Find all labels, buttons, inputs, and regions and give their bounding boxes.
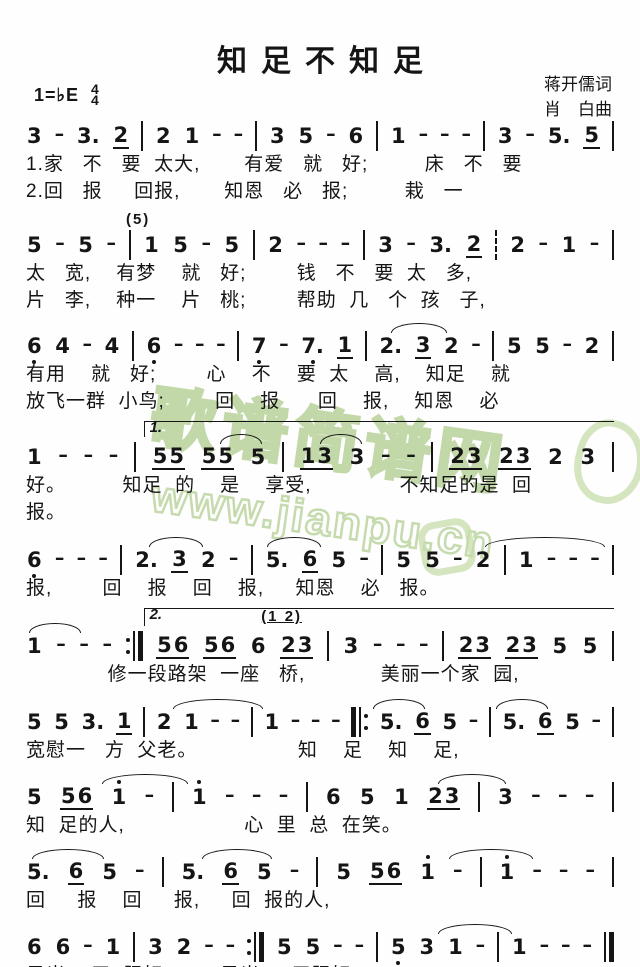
duration-dash: – <box>83 333 93 355</box>
note-group: 1 <box>561 234 578 257</box>
duration-dash: – <box>440 123 450 145</box>
duration-dash: – <box>532 859 542 881</box>
note: 1 <box>143 234 160 257</box>
volta-label: 2. <box>145 606 163 623</box>
duration-dash: – <box>84 444 94 466</box>
duration-dash: – <box>102 633 112 655</box>
note: 3 <box>579 446 596 469</box>
note: 2 <box>475 549 492 572</box>
annotation: (1 2) <box>261 608 302 625</box>
barline <box>483 121 485 151</box>
barline <box>497 932 499 962</box>
duration-dash: – <box>201 232 211 254</box>
system-line: 553.121––1–––5.65–5.65–宽慰一 方 父老。 知 足 知 足… <box>26 694 614 763</box>
note-group: 5 <box>534 335 551 358</box>
barline <box>253 230 255 260</box>
note: 3 <box>444 785 461 808</box>
barline <box>381 545 383 575</box>
duration-dash: – <box>476 934 486 956</box>
volta-label: 1. <box>145 419 163 436</box>
barline <box>504 545 506 575</box>
barline <box>376 932 378 962</box>
system-line: 6–––2.32–5.65–55–21–––报, 回 报 回 报, 知恩 必 报… <box>26 532 614 601</box>
note-group: 2 <box>176 936 193 959</box>
barline <box>141 121 143 151</box>
note: 6 <box>77 785 94 808</box>
duration-dash: – <box>279 784 289 806</box>
note: 5 <box>582 635 599 658</box>
duration-dash: – <box>341 232 351 254</box>
duration-dash: – <box>216 333 226 355</box>
lyrics-line: 报, 回 报 回 报, 知恩 必 报。 <box>26 577 614 601</box>
duration-dash: – <box>229 547 239 569</box>
duration-dash: – <box>290 859 300 881</box>
note: 1 <box>105 936 122 959</box>
duration-dash: – <box>333 934 343 956</box>
note: 1 <box>447 936 464 959</box>
note-group: 3 <box>579 446 596 469</box>
note: 2 <box>176 936 193 959</box>
sheet-music-page: 歌谱简谱网 www.jianpu.cn 知足不知足 蒋开儒词 肖 白曲 1=♭E… <box>0 0 640 967</box>
duration-dash: – <box>582 934 592 956</box>
note-group: 7. <box>300 335 325 358</box>
note-group: 3 <box>26 125 43 148</box>
note-group: 56 <box>369 860 402 885</box>
note: 1 <box>518 549 535 572</box>
note: 5 <box>298 125 315 148</box>
note-group: 6 <box>222 860 239 885</box>
note-group: 2 <box>200 549 217 572</box>
note: 5 <box>201 445 218 468</box>
note: 6 <box>222 860 239 883</box>
note: 3 <box>343 635 360 658</box>
notation-row: 553.121––1–––5.65–5.65– <box>26 708 614 736</box>
duration-dash: – <box>561 934 571 956</box>
note-group: 5 <box>582 635 599 658</box>
note: 7 <box>251 335 268 358</box>
system-line: (5)5–5–15–52–––3–3.22–1–太 宽, 有梦 就 好; 钱 不… <box>26 211 614 313</box>
note: 2 <box>498 445 515 468</box>
note-group: 56 <box>156 634 189 659</box>
note-group: 23 <box>498 445 531 470</box>
note-group: 1 <box>105 936 122 959</box>
duration-dash: – <box>296 232 306 254</box>
barline <box>143 707 145 737</box>
duration-dash: – <box>83 934 93 956</box>
note: 7. <box>300 335 325 358</box>
note: 1 <box>561 234 578 257</box>
duration-dash: – <box>234 123 244 145</box>
duration-dash: – <box>585 784 595 806</box>
note: 2 <box>505 634 522 657</box>
note: 1 <box>300 445 317 468</box>
note-group: 2 <box>443 335 460 358</box>
note-group: 5 <box>77 234 94 257</box>
duration-dash: – <box>212 123 222 145</box>
duration-dash: – <box>226 934 236 956</box>
note: 1 <box>263 711 280 734</box>
duration-dash: – <box>55 232 65 254</box>
duration-dash: – <box>381 444 391 466</box>
note: 5 <box>101 861 118 884</box>
duration-dash: – <box>453 859 463 881</box>
note: 5 <box>335 861 352 884</box>
note-group: 2 <box>113 124 130 149</box>
note-group: 5 <box>250 446 267 469</box>
note-group: 1 <box>26 446 43 469</box>
note: 6 <box>55 936 72 959</box>
note: 6 <box>537 710 554 733</box>
note-group: 2 <box>584 335 601 358</box>
note-group: 6 <box>26 936 43 959</box>
note: 5 <box>26 786 43 809</box>
note-group: 1 <box>116 710 133 735</box>
note: 1 <box>184 125 201 148</box>
note-group: 1 <box>191 786 208 809</box>
note: 3 <box>297 634 314 657</box>
barline <box>327 631 329 661</box>
system-line: 3–3.221––35–61–––3–5.51.家 不 要 太大, 有爱 就 好… <box>26 116 614 204</box>
note: 3 <box>466 445 483 468</box>
note-group: 6 <box>250 635 267 658</box>
note: 6 <box>26 335 43 358</box>
key-signature: 1=♭E <box>34 85 79 106</box>
duration-dash: – <box>531 784 541 806</box>
barline <box>612 631 614 661</box>
duration-dash: – <box>77 547 87 569</box>
note-group: 5 <box>335 861 352 884</box>
note-group: 1 <box>337 334 354 359</box>
duration-dash: – <box>469 709 479 731</box>
note: 2 <box>458 634 475 657</box>
duration-dash: – <box>225 784 235 806</box>
duration-dash: – <box>319 232 329 254</box>
duration-dash: – <box>58 444 68 466</box>
note-group: 5 <box>424 549 441 572</box>
time-signature-denominator: 4 <box>91 95 99 106</box>
system-line: 2.(1 2)1–––56566233–––232355 修一段路架 一座 桥,… <box>26 608 614 687</box>
duration-dash: – <box>55 547 65 569</box>
note-group: 3 <box>147 936 164 959</box>
note: 5 <box>60 785 77 808</box>
barline <box>134 442 136 472</box>
lyrics-line: 片 李, 种一 片 桃; 帮助 几 个 孩 子, <box>26 289 614 313</box>
note-group: 5 <box>26 786 43 809</box>
note-group: 3 <box>497 125 514 148</box>
duration-dash: – <box>109 444 119 466</box>
note-group: 4 <box>104 335 121 358</box>
note-group: 6 <box>26 335 43 358</box>
duration-dash: – <box>558 784 568 806</box>
note-group: 5. <box>265 549 290 572</box>
duration-dash: – <box>539 232 549 254</box>
note-group: 2 <box>156 711 173 734</box>
barline <box>316 857 318 887</box>
note: 1 <box>499 861 516 884</box>
barline <box>480 857 482 887</box>
note-group: 5. <box>181 861 206 884</box>
duration-dash: – <box>590 547 600 569</box>
duration-dash: – <box>563 333 573 355</box>
note-group: 6 <box>348 125 365 148</box>
duration-dash: – <box>540 934 550 956</box>
lyrics-line: 回 报 回 报, 回 报的人, <box>26 889 614 913</box>
note: 5 <box>305 936 322 959</box>
note: 5 <box>395 549 412 572</box>
note: 5. <box>547 125 572 148</box>
note: 5 <box>369 860 386 883</box>
end-repeat-barline <box>247 932 264 962</box>
note-group: 1 <box>111 786 128 809</box>
duration-dash: – <box>406 444 416 466</box>
note: 2 <box>156 711 173 734</box>
note: 2 <box>443 335 460 358</box>
barline <box>431 442 433 472</box>
note: 5 <box>53 711 70 734</box>
note: 6 <box>250 635 267 658</box>
note: 5 <box>424 549 441 572</box>
note: 5. <box>26 861 51 884</box>
note: 3. <box>76 125 101 148</box>
duration-dash: – <box>585 859 595 881</box>
duration-dash: – <box>145 784 155 806</box>
duration-dash: – <box>231 709 241 731</box>
note: 3 <box>521 634 538 657</box>
note-group: 3. <box>428 234 453 257</box>
note-group: 4 <box>54 335 71 358</box>
lyrics-line: 报。 <box>26 501 614 525</box>
note-group: 2 <box>466 233 483 258</box>
barline <box>133 932 135 962</box>
barline <box>237 331 239 361</box>
note-group: 23 <box>449 445 482 470</box>
barline <box>251 545 253 575</box>
notation-row: 64–46–––7–7.12.32–55–2 <box>26 332 614 360</box>
note: 6 <box>414 710 431 733</box>
notation-row: 3–3.221––35–61–––3–5.5 <box>26 122 614 150</box>
duration-dash: – <box>55 123 65 145</box>
barline <box>132 331 134 361</box>
note: 5 <box>156 634 173 657</box>
dashed-barline <box>495 230 497 260</box>
note-group: 5 <box>172 234 189 257</box>
note-group: 6 <box>302 548 319 573</box>
volta-bracket: 1. <box>144 421 614 437</box>
barline <box>612 707 614 737</box>
duration-dash: – <box>568 547 578 569</box>
note-group: 3 <box>349 446 366 469</box>
note-group: 6 <box>68 860 85 885</box>
duration-dash: – <box>355 934 365 956</box>
note: 1 <box>26 446 43 469</box>
system-line: 66–132––55––531–1–––风光 无 限好, 风光 无限好。 <box>26 920 614 967</box>
note: 2 <box>113 124 130 147</box>
duration-dash: – <box>591 709 601 731</box>
barline <box>489 707 491 737</box>
note: 3 <box>316 445 333 468</box>
final-barline <box>604 932 614 962</box>
barline <box>612 782 614 812</box>
note: 6 <box>146 335 163 358</box>
note: 5 <box>168 445 185 468</box>
note-group: 1 <box>419 861 436 884</box>
lyrics-line: 1.家 不 要 太大, 有爱 就 好; 床 不 要 <box>26 153 614 177</box>
time-signature: 4 4 <box>91 84 99 106</box>
note-group: 1 <box>184 125 201 148</box>
note-group: 5 <box>564 711 581 734</box>
score-header: 知足不知足 蒋开儒词 肖 白曲 1=♭E 4 4 <box>0 0 640 106</box>
note-group: 3 <box>343 635 360 658</box>
duration-dash: – <box>210 709 220 731</box>
note-group: 3 <box>497 786 514 809</box>
note: 1 <box>390 125 407 148</box>
note: 6 <box>348 125 365 148</box>
duration-dash: – <box>291 709 301 731</box>
annotation: (5) <box>126 211 150 228</box>
note: 3 <box>349 446 366 469</box>
note: 5 <box>583 124 600 147</box>
duration-dash: – <box>373 633 383 655</box>
note-group: 5. <box>547 125 572 148</box>
notation-row: 1–––56566233–––232355 <box>26 632 614 660</box>
note-group: 5 <box>390 936 407 959</box>
lyrics-line: 知 足的人, 心 里 总 在笑。 <box>26 814 614 838</box>
volta-bracket: 2. <box>144 608 614 626</box>
note: 5. <box>181 861 206 884</box>
note-group: 3 <box>419 936 436 959</box>
note-group: 6 <box>537 710 554 735</box>
duration-dash: – <box>204 934 214 956</box>
note: 5 <box>564 711 581 734</box>
note-group: 1 <box>511 936 528 959</box>
note-group: 6 <box>146 335 163 358</box>
duration-dash: – <box>419 123 429 145</box>
note: 5 <box>26 234 43 257</box>
note: 5 <box>224 234 241 257</box>
duration-dash: – <box>525 123 535 145</box>
note-group: 5 <box>305 936 322 959</box>
note-group: 1 <box>143 234 160 257</box>
duration-dash: – <box>311 709 321 731</box>
note: 4 <box>54 335 71 358</box>
barline <box>612 230 614 260</box>
note-group: 5 <box>551 635 568 658</box>
note: 5 <box>551 635 568 658</box>
note: 5. <box>265 549 290 572</box>
barline <box>612 442 614 472</box>
barline <box>255 121 257 151</box>
note: 2 <box>427 785 444 808</box>
barline <box>442 631 444 661</box>
notation-row: 5.65–5.65–5561–1––– <box>26 858 614 886</box>
note: 2 <box>449 445 466 468</box>
note: 5 <box>390 936 407 959</box>
note: 2. <box>378 335 403 358</box>
duration-dash: – <box>359 547 369 569</box>
note: 2 <box>584 335 601 358</box>
note: 2 <box>466 233 483 256</box>
note: 6 <box>26 549 43 572</box>
note: 3 <box>515 445 532 468</box>
note: 2 <box>509 234 526 257</box>
note-group: 5 <box>26 234 43 257</box>
note: 5 <box>26 711 43 734</box>
note: 1 <box>183 711 200 734</box>
barline <box>129 230 131 260</box>
note-group: 55 <box>152 445 185 470</box>
note: 5 <box>250 446 267 469</box>
barline <box>365 331 367 361</box>
note: 3 <box>419 936 436 959</box>
note: 2 <box>267 234 284 257</box>
note: 5 <box>203 634 220 657</box>
barline <box>172 782 174 812</box>
note: 2 <box>155 125 172 148</box>
barline <box>612 857 614 887</box>
note-group: 1 <box>183 711 200 734</box>
lyrics-line: 宽慰一 方 父老。 知 足 知 足, <box>26 739 614 763</box>
note: 3 <box>171 548 188 571</box>
duration-dash: – <box>559 859 569 881</box>
barline <box>478 782 480 812</box>
note: 3 <box>415 334 432 357</box>
note-group: 5 <box>441 711 458 734</box>
duration-dash: – <box>326 123 336 145</box>
note-group: 6 <box>414 710 431 735</box>
note: 5 <box>276 936 293 959</box>
note: 3 <box>497 125 514 148</box>
lyrics-line: 2.回 报 回报, 知恩 必 报; 栽 一 <box>26 180 614 204</box>
note: 6 <box>220 634 237 657</box>
note-group: 3. <box>81 711 106 734</box>
notation-row: 5–5–15–52–––3–3.22–1– <box>26 231 614 259</box>
duration-dash: – <box>174 333 184 355</box>
note-group: 5 <box>506 335 523 358</box>
barline <box>363 230 365 260</box>
note-group: 5 <box>53 711 70 734</box>
note: 2 <box>547 446 564 469</box>
duration-dash: – <box>279 333 289 355</box>
note: 4 <box>104 335 121 358</box>
note: 2 <box>200 549 217 572</box>
duration-dash: – <box>56 633 66 655</box>
note: 1 <box>116 710 133 733</box>
note-group: 5 <box>276 936 293 959</box>
note-group: 5 <box>224 234 241 257</box>
note: 5. <box>379 711 404 734</box>
note-group: 6 <box>325 786 342 809</box>
barline <box>376 121 378 151</box>
note: 3 <box>474 634 491 657</box>
barline <box>306 782 308 812</box>
note-group: 3 <box>377 234 394 257</box>
note-group: 7 <box>251 335 268 358</box>
lyrics-line: 放飞一群 小鸟; 回 报 回 报, 知恩 必 <box>26 390 614 414</box>
notation-row: 1–––55555133––232323 <box>26 443 614 471</box>
note-group: 5 <box>583 124 600 149</box>
note-group: 23 <box>280 634 313 659</box>
lyrics-line: 有用 就 好; 心 不 要 太 高, 知足 就 <box>26 363 614 387</box>
note-group: 5 <box>26 711 43 734</box>
note: 2. <box>134 549 159 572</box>
barline <box>612 121 614 151</box>
note-group: 6 <box>55 936 72 959</box>
notation-row: 5561–1–––651233––– <box>26 783 614 811</box>
note-group: 3 <box>415 334 432 359</box>
barline <box>120 545 122 575</box>
system-line: 1.1–––55555133––232323好。 知足 的 是 享受, 不知足的… <box>26 421 614 525</box>
note: 5 <box>331 549 348 572</box>
